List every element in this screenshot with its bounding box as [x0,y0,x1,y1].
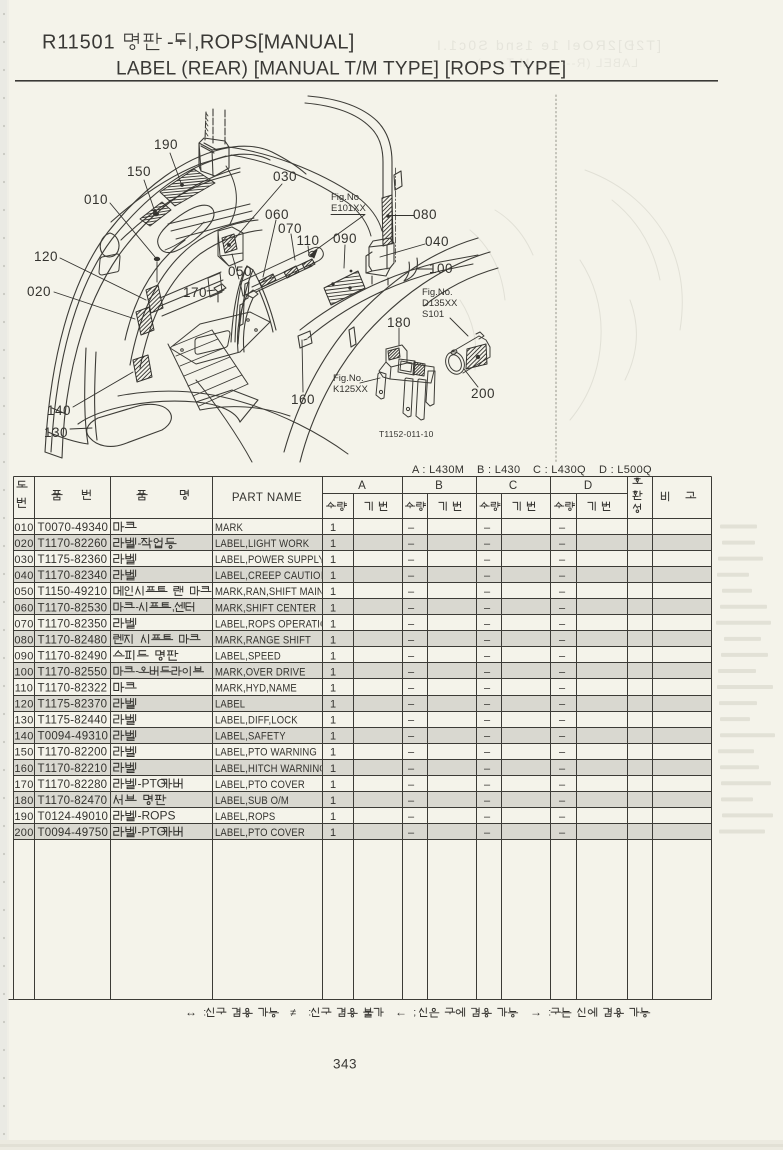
svg-text:–: – [408,586,415,598]
svg-text:1: 1 [330,827,336,839]
svg-text:↔: ↔ [185,1005,197,1019]
svg-text:MARK,RANGE SHIFT: MARK,RANGE SHIFT [215,635,311,647]
svg-text:-ROPS: -ROPS [138,809,176,823]
svg-text:–: – [408,795,415,807]
svg-text:–: – [559,715,566,727]
svg-text:–: – [559,763,566,775]
svg-text:–: – [559,747,566,759]
svg-text:040: 040 [14,570,33,582]
svg-text:T0124-49010: T0124-49010 [38,811,109,823]
svg-text:–: – [408,715,415,727]
svg-text:–: – [408,811,415,823]
svg-text:D: D [584,480,592,492]
svg-text:190: 190 [14,811,33,823]
svg-text:LABEL,PTO COVER: LABEL,PTO COVER [215,827,305,839]
svg-text:≠: ≠ [290,1007,296,1019]
svg-text:A: A [358,480,366,492]
svg-text:1: 1 [330,554,336,566]
svg-text:MARK,OVER DRIVE: MARK,OVER DRIVE [215,667,306,679]
svg-text:LABEL,PTO COVER: LABEL,PTO COVER [215,779,305,791]
svg-text:1: 1 [330,650,336,662]
svg-text:090: 090 [14,650,33,662]
svg-text:MARK,SHIFT CENTER: MARK,SHIFT CENTER [215,603,316,615]
svg-text:T1170-82210: T1170-82210 [38,763,108,775]
svg-text:060: 060 [14,602,33,614]
svg-text:–: – [408,747,415,759]
svg-text:T1170-82550: T1170-82550 [38,667,108,679]
svg-text:160: 160 [291,392,315,407]
svg-text:LABEL,ROPS OPERATION: LABEL,ROPS OPERATION [215,619,335,631]
svg-text:–: – [559,699,566,711]
svg-text:–: – [484,715,491,727]
svg-text:050: 050 [228,264,252,279]
svg-text:020: 020 [14,538,33,550]
svg-text:1: 1 [330,683,336,695]
svg-text:-: - [138,536,142,550]
svg-text:–: – [559,795,566,807]
svg-text:S101: S101 [422,309,444,320]
svg-text:–: – [559,683,566,695]
svg-text:T1170-82530: T1170-82530 [38,602,108,614]
svg-text:MARK,HYD,NAME: MARK,HYD,NAME [215,683,297,695]
svg-text:–: – [484,650,491,662]
svg-text:Fig.No.: Fig.No. [333,373,364,384]
svg-text:B : L430: B : L430 [477,464,520,476]
svg-text:–: – [408,634,415,646]
svg-text:LABEL,HITCH WARNING: LABEL,HITCH WARNING [215,763,327,775]
svg-text:–: – [484,699,491,711]
svg-text:190: 190 [154,137,178,152]
svg-text:T1152-011-10: T1152-011-10 [379,429,434,439]
svg-text:200: 200 [14,827,33,839]
svg-text:MARK: MARK [215,523,243,535]
svg-text:1: 1 [330,667,336,679]
svg-text:–: – [559,634,566,646]
svg-text:T1175-82440: T1175-82440 [38,715,108,727]
svg-text:1: 1 [330,811,336,823]
svg-text:080: 080 [413,207,437,222]
svg-text:T1175-82370: T1175-82370 [38,699,108,711]
svg-text:–: – [408,779,415,791]
svg-text:T1170-82350: T1170-82350 [38,618,108,630]
svg-text:1: 1 [330,538,336,550]
svg-text:–: – [484,618,491,630]
svg-text:←: ← [395,1005,407,1019]
svg-text:060: 060 [265,207,289,222]
svg-text:T1175-82360: T1175-82360 [38,554,108,566]
svg-text:D : L500Q: D : L500Q [599,464,652,476]
svg-text:070: 070 [14,618,33,630]
svg-text:–: – [559,779,566,791]
svg-text:–: – [484,586,491,598]
svg-text:140: 140 [14,731,33,743]
svg-text:100: 100 [14,667,33,679]
svg-text:343: 343 [333,1057,357,1072]
svg-text:–: – [484,522,491,534]
svg-text:030: 030 [273,169,297,184]
svg-text:-: - [135,602,139,614]
svg-text:A : L430M: A : L430M [412,464,464,476]
svg-text:010: 010 [14,522,33,534]
svg-text:–: – [408,699,415,711]
svg-text:T1170-82200: T1170-82200 [38,747,108,759]
svg-text:030: 030 [14,554,33,566]
svg-text:180: 180 [387,315,411,330]
svg-text:-: - [167,32,174,54]
svg-text:,: , [172,602,175,614]
svg-text:–: – [408,538,415,550]
svg-text:[T2Đ]2ROel 1e 1snd S0c1.I: [T2Đ]2ROel 1e 1snd S0c1.I [435,37,661,53]
svg-text:Fig.No.: Fig.No. [331,192,362,203]
svg-text:–: – [484,779,491,791]
svg-text:–: – [408,618,415,630]
svg-text:110: 110 [15,683,33,695]
svg-text:1: 1 [330,634,336,646]
svg-text:140: 140 [47,403,71,418]
svg-text:PART NAME: PART NAME [232,492,302,504]
svg-text:–: – [408,683,415,695]
svg-text:T0094-49310: T0094-49310 [38,731,109,743]
svg-text:T1170-82280: T1170-82280 [38,779,108,791]
svg-text:–: – [559,650,566,662]
svg-text:–: – [484,683,491,695]
svg-text:→: → [530,1005,542,1019]
svg-text:T1170-82490: T1170-82490 [38,650,108,662]
svg-text:130: 130 [44,425,68,440]
svg-text:–: – [408,827,415,839]
svg-text:–: – [559,538,566,550]
svg-text:–: – [484,634,491,646]
svg-text:1: 1 [330,618,336,630]
svg-text:120: 120 [14,699,33,711]
svg-text:T1170-82470: T1170-82470 [38,795,108,807]
svg-text:–: – [408,570,415,582]
svg-text:170: 170 [14,779,33,791]
svg-text:T1170-82322: T1170-82322 [38,683,108,695]
svg-text:–: – [408,602,415,614]
svg-text:E101XX: E101XX [331,203,367,214]
svg-text::: : [203,1007,206,1019]
svg-text:120: 120 [34,249,58,264]
svg-text:1: 1 [330,779,336,791]
svg-text:170: 170 [183,285,207,300]
svg-text:090: 090 [333,231,357,246]
svg-text:1: 1 [330,522,336,534]
svg-text:LABEL (R--- -----M T-- --): LABEL (R--- -----M T-- --) [475,56,638,70]
svg-text:–: – [559,522,566,534]
svg-text:1: 1 [330,586,336,598]
svg-text:1: 1 [330,715,336,727]
svg-text:–: – [484,731,491,743]
svg-text:–: – [559,602,566,614]
svg-text:LABEL,CREEP CAUTION: LABEL,CREEP CAUTION [215,571,328,583]
svg-text:040: 040 [425,234,449,249]
svg-text:1: 1 [330,795,336,807]
svg-text:100: 100 [429,261,453,276]
svg-text:T1150-49210: T1150-49210 [38,586,108,598]
svg-text:–: – [408,554,415,566]
svg-text:C : L430Q: C : L430Q [533,464,586,476]
svg-text:1: 1 [330,602,336,614]
svg-text:LABEL: LABEL [215,699,245,711]
svg-text:150: 150 [14,747,33,759]
svg-text:080: 080 [14,634,33,646]
svg-text:-: - [135,666,139,678]
svg-text:–: – [484,554,491,566]
svg-text:160: 160 [14,763,33,775]
svg-text:–: – [484,811,491,823]
svg-text:150: 150 [127,164,151,179]
svg-text:LABEL,SAFETY: LABEL,SAFETY [215,731,286,743]
svg-text:B: B [435,480,443,492]
svg-text:–: – [484,570,491,582]
svg-text:–: – [559,811,566,823]
svg-text:K125XX: K125XX [333,384,369,395]
svg-text:LABEL,SPEED: LABEL,SPEED [215,651,281,663]
svg-text:110: 110 [296,233,319,248]
svg-text:–: – [484,667,491,679]
svg-text:T0070-49340: T0070-49340 [38,522,109,534]
svg-text:LABEL,SUB O/M: LABEL,SUB O/M [215,795,289,807]
svg-text:T1170-82480: T1170-82480 [38,634,108,646]
svg-text:1: 1 [330,763,336,775]
svg-text:–: – [484,795,491,807]
svg-text:–: – [559,667,566,679]
svg-text:–: – [559,554,566,566]
svg-text:010: 010 [84,192,108,207]
svg-text:020: 020 [27,284,51,299]
svg-text:T1170-82260: T1170-82260 [38,538,108,550]
svg-text:-PTO: -PTO [138,777,166,791]
svg-text:MARK,RAN,SHIFT MAIN: MARK,RAN,SHIFT MAIN [215,587,324,599]
svg-text:LABEL,ROPS: LABEL,ROPS [215,811,275,823]
svg-text:C: C [509,480,517,492]
svg-text:T0094-49750: T0094-49750 [38,827,109,839]
svg-text:1: 1 [330,570,336,582]
svg-text:–: – [408,763,415,775]
svg-text:1: 1 [330,747,336,759]
svg-text:130: 130 [14,715,33,727]
svg-text:–: – [408,731,415,743]
svg-text:–: – [484,763,491,775]
svg-text:LABEL,POWER SUPPLY: LABEL,POWER SUPPLY [215,555,325,567]
svg-text:T1170-82340: T1170-82340 [38,570,108,582]
svg-text:200: 200 [471,386,495,401]
svg-text:1: 1 [330,731,336,743]
svg-text:–: – [559,618,566,630]
svg-text:–: – [559,570,566,582]
svg-text:1: 1 [330,699,336,711]
svg-text:–: – [408,522,415,534]
svg-text:R11501: R11501 [42,32,115,54]
svg-text:050: 050 [14,586,33,598]
svg-text:–: – [559,827,566,839]
svg-text::: : [548,1007,551,1019]
svg-text:–: – [559,586,566,598]
svg-text:,ROPS[MANUAL]: ,ROPS[MANUAL] [194,32,355,54]
svg-text:–: – [559,731,566,743]
svg-text:LABEL,LIGHT WORK: LABEL,LIGHT WORK [215,539,309,551]
svg-text:-PTO: -PTO [138,825,166,839]
svg-text:;: ; [413,1007,416,1019]
svg-text:LABEL,DIFF,LOCK: LABEL,DIFF,LOCK [215,715,298,727]
svg-text:LABEL,PTO WARNING: LABEL,PTO WARNING [215,747,317,759]
svg-text:–: – [484,827,491,839]
svg-text:–: – [408,667,415,679]
svg-text:180: 180 [14,795,33,807]
svg-text:–: – [484,602,491,614]
svg-text:Fig.No.: Fig.No. [422,287,453,298]
svg-text:–: – [484,747,491,759]
svg-text:D135XX: D135XX [422,298,458,309]
svg-text::: : [308,1007,311,1019]
svg-text:–: – [484,538,491,550]
svg-text:–: – [408,650,415,662]
